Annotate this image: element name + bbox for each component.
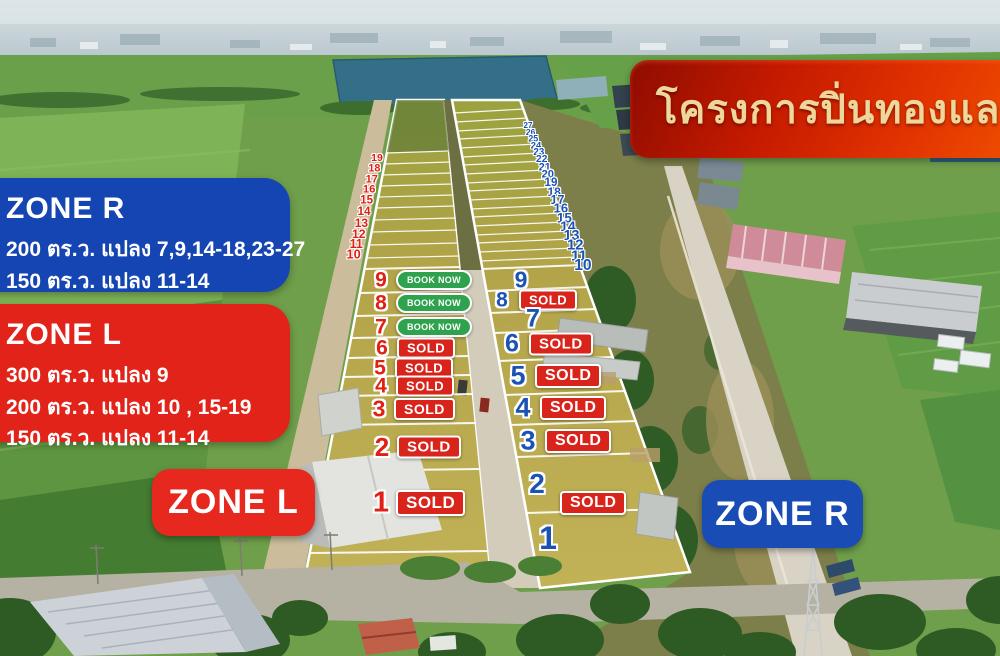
plot-number: 3: [520, 428, 535, 455]
plot-number: 7: [375, 317, 387, 338]
plot-number: 4: [375, 376, 387, 397]
aerial-land-plot-ad: 9BOOK NOW8BOOK NOW7BOOK NOW6SOLD5SOLD4SO…: [0, 0, 1000, 656]
zone-l-label-badge: ZONE L: [152, 469, 315, 536]
sold-badge: SOLD: [540, 396, 606, 420]
plot-number: 5: [510, 363, 525, 390]
sold-badge: SOLD: [396, 490, 465, 516]
plot-number: 4: [515, 395, 530, 422]
project-title: โครงการปิ่นทองแลนด์: [630, 77, 1000, 141]
zone-l-info-box: ZONE L 300 ตร.ว. แปลง 9 200 ตร.ว. แปลง 1…: [0, 304, 290, 442]
plot-number: 1: [539, 522, 557, 554]
plot-number: 2: [529, 470, 545, 498]
sold-badge: SOLD: [545, 429, 611, 453]
zone-l-info-title: ZONE L: [6, 318, 278, 352]
zone-l-info-line: 300 ตร.ว. แปลง 9: [6, 360, 278, 392]
sold-badge: SOLD: [529, 333, 593, 356]
plot-number: 2: [375, 434, 389, 460]
plot-number: 8: [496, 290, 508, 311]
sold-badge: SOLD: [396, 376, 454, 397]
plot-number: 9: [515, 269, 528, 292]
sold-badge: SOLD: [560, 491, 626, 515]
sold-badge: SOLD: [394, 398, 455, 420]
plot-number: 6: [376, 338, 388, 359]
book-now-badge: BOOK NOW: [396, 317, 472, 337]
zone-r-info-box: ZONE R 200 ตร.ว. แปลง 7,9,14-18,23-27 15…: [0, 178, 290, 292]
book-now-badge: BOOK NOW: [396, 293, 472, 313]
sold-badge: SOLD: [397, 338, 455, 359]
project-title-banner: โครงการปิ่นทองแลนด์: [630, 60, 1000, 158]
zone-r-info-line: 150 ตร.ว. แปลง 11-14: [6, 266, 278, 298]
book-now-badge: BOOK NOW: [396, 270, 472, 290]
plot-number: 9: [375, 270, 387, 291]
zone-l-info-line: 150 ตร.ว. แปลง 11-14: [6, 423, 278, 455]
row-number: 10: [347, 249, 361, 262]
zone-r-info-line: 200 ตร.ว. แปลง 7,9,14-18,23-27: [6, 234, 278, 266]
plot-number: 3: [373, 398, 386, 421]
sold-badge: SOLD: [535, 364, 601, 388]
plot-number: 7: [526, 307, 540, 332]
row-number: 10: [574, 258, 591, 274]
zone-l-info-line: 200 ตร.ว. แปลง 10 , 15-19: [6, 392, 278, 424]
plot-number: 8: [375, 293, 387, 314]
plot-number: 6: [505, 332, 519, 357]
plot-number: 1: [373, 489, 389, 518]
zone-r-label-badge: ZONE R: [702, 480, 863, 548]
zone-r-info-title: ZONE R: [6, 192, 278, 226]
sold-badge: SOLD: [397, 436, 461, 459]
